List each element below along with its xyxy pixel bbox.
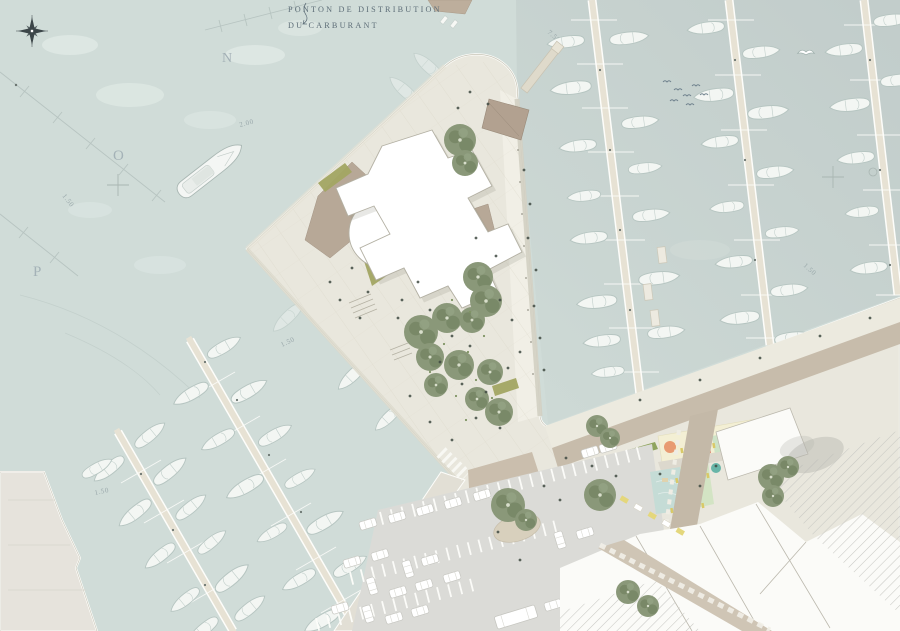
play-bench: [662, 478, 668, 482]
tree: [515, 509, 537, 531]
play-circle-teal: [711, 463, 721, 473]
tree: [477, 359, 503, 385]
site-plan-svg: N O P 2.00 1.50 7.50 1.50 1.50 1.50: [0, 0, 900, 631]
tree: [637, 595, 659, 617]
fuel-pontoon-label-line2: DU CARBURANT: [288, 21, 379, 30]
berth-letter: P: [33, 264, 41, 280]
tree: [424, 373, 448, 397]
dock-dot: [15, 84, 17, 86]
berth-letter: O: [113, 148, 124, 164]
tree: [600, 428, 620, 448]
tree: [584, 479, 616, 511]
tree: [777, 456, 799, 478]
berth-letter: N: [222, 51, 232, 66]
tree: [762, 485, 784, 507]
tree: [459, 307, 485, 333]
tree: [616, 580, 640, 604]
tree: [485, 398, 513, 426]
jetty-float: [643, 284, 653, 301]
tree: [432, 303, 462, 333]
tree: [444, 350, 474, 380]
tree: [465, 387, 489, 411]
fuel-pontoon-label-line1: PONTON DE DISTRIBUTION: [288, 5, 442, 14]
jetty-float: [657, 247, 667, 264]
tree: [416, 343, 444, 371]
tree: [452, 150, 478, 176]
jetty-float: [650, 310, 660, 327]
site-plan-canvas: N O P 2.00 1.50 7.50 1.50 1.50 1.50: [0, 0, 900, 631]
